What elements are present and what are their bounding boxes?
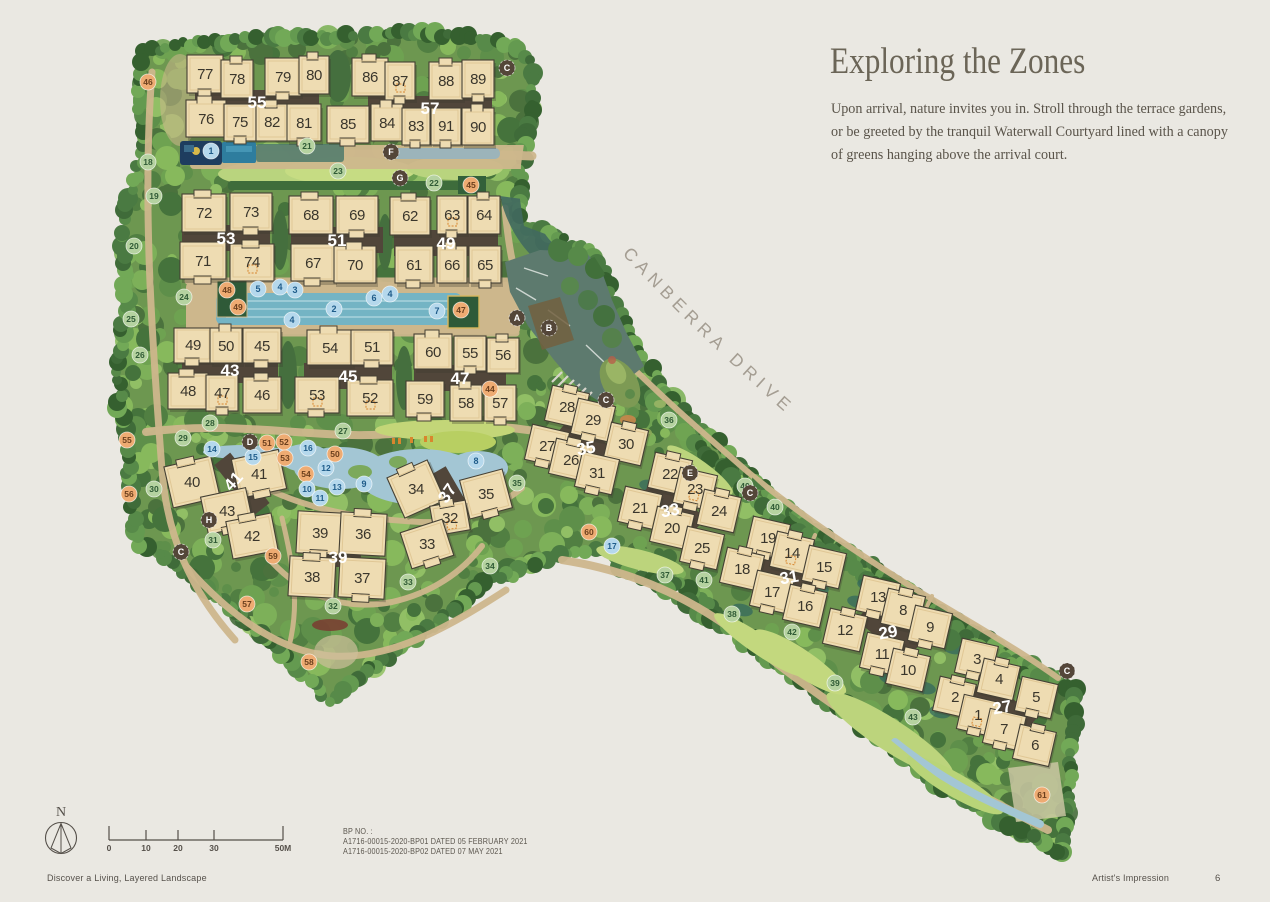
svg-text:90: 90 [470,119,486,136]
svg-text:65: 65 [477,257,493,274]
svg-text:C: C [504,63,511,73]
svg-text:73: 73 [243,204,259,221]
svg-text:74: 74 [244,254,260,271]
svg-text:7: 7 [434,306,439,316]
svg-text:51: 51 [328,231,347,250]
svg-text:50: 50 [330,449,340,459]
svg-text:34: 34 [408,481,424,498]
svg-text:41: 41 [699,575,709,585]
svg-text:23: 23 [333,166,343,176]
svg-text:47: 47 [456,305,466,315]
svg-text:42: 42 [244,528,260,545]
svg-text:24: 24 [179,292,189,302]
svg-text:62: 62 [402,208,418,225]
svg-text:37: 37 [354,570,370,587]
svg-text:33: 33 [403,577,413,587]
svg-text:78: 78 [229,71,245,88]
svg-text:88: 88 [438,73,454,90]
svg-text:51: 51 [262,438,272,448]
svg-text:G: G [396,173,403,183]
svg-text:49: 49 [185,337,201,354]
svg-text:58: 58 [304,657,314,667]
svg-text:8: 8 [899,602,907,619]
svg-text:30: 30 [618,436,634,453]
svg-text:68: 68 [303,207,319,224]
svg-text:19: 19 [760,530,776,547]
svg-text:26: 26 [135,350,145,360]
svg-text:H: H [206,515,213,525]
svg-text:51: 51 [364,339,380,356]
svg-text:76: 76 [198,111,214,128]
svg-text:67: 67 [305,255,321,272]
svg-text:16: 16 [797,598,813,615]
svg-text:11: 11 [316,493,325,503]
svg-text:22: 22 [429,178,439,188]
svg-text:89: 89 [470,71,486,88]
svg-text:61: 61 [406,257,422,274]
svg-text:75: 75 [232,114,248,131]
svg-text:49: 49 [437,234,456,253]
svg-text:83: 83 [408,118,424,135]
svg-text:48: 48 [222,285,232,295]
svg-text:81: 81 [296,115,312,132]
svg-text:33: 33 [659,499,681,521]
svg-text:B: B [546,323,553,333]
svg-text:16: 16 [303,443,313,453]
svg-text:28: 28 [205,418,215,428]
svg-text:35: 35 [575,437,597,459]
svg-text:7: 7 [1000,721,1008,738]
svg-text:45: 45 [339,367,358,386]
svg-text:59: 59 [268,551,278,561]
svg-text:71: 71 [195,253,211,270]
svg-text:31: 31 [208,535,218,545]
svg-text:25: 25 [126,314,136,324]
svg-text:38: 38 [727,609,737,619]
svg-text:39: 39 [329,548,348,567]
svg-text:57: 57 [421,99,440,118]
svg-text:F: F [388,147,394,157]
svg-text:46: 46 [254,387,270,404]
svg-text:54: 54 [322,340,338,357]
svg-text:4: 4 [289,315,294,325]
svg-text:37: 37 [660,570,670,580]
svg-text:50M: 50M [275,843,292,853]
svg-text:61: 61 [1037,790,1047,800]
svg-text:39: 39 [830,678,840,688]
svg-text:33: 33 [419,536,435,553]
svg-text:60: 60 [425,344,441,361]
svg-text:43: 43 [219,503,235,520]
svg-text:80: 80 [306,67,322,84]
svg-text:28: 28 [559,399,575,416]
svg-text:79: 79 [275,69,291,86]
svg-text:35: 35 [512,478,522,488]
svg-text:56: 56 [124,489,134,499]
svg-text:8: 8 [473,456,478,466]
svg-text:45: 45 [466,180,476,190]
svg-text:58: 58 [458,395,474,412]
svg-text:20: 20 [664,520,680,537]
svg-text:85: 85 [340,116,356,133]
svg-text:70: 70 [347,257,363,274]
svg-text:21: 21 [632,500,648,517]
svg-text:41: 41 [251,466,267,483]
svg-text:13: 13 [332,482,342,492]
svg-text:84: 84 [379,115,395,132]
svg-text:55: 55 [462,345,478,362]
svg-text:17: 17 [764,584,780,601]
svg-text:19: 19 [149,191,159,201]
svg-text:91: 91 [438,118,454,135]
svg-text:40: 40 [770,502,780,512]
svg-text:22: 22 [662,466,678,483]
svg-text:48: 48 [180,383,196,400]
svg-text:23: 23 [687,481,703,498]
svg-text:12: 12 [321,463,331,473]
svg-text:E: E [687,468,693,478]
svg-text:10: 10 [302,484,312,494]
svg-text:53: 53 [309,387,325,404]
svg-text:52: 52 [279,437,289,447]
svg-text:35: 35 [478,486,494,503]
svg-text:2: 2 [951,689,959,706]
svg-text:6: 6 [1031,737,1039,754]
svg-text:14: 14 [207,444,217,454]
svg-text:30: 30 [149,484,159,494]
svg-text:49: 49 [233,302,243,312]
svg-text:72: 72 [196,205,212,222]
svg-text:77: 77 [197,66,213,83]
svg-text:N: N [56,805,66,820]
svg-text:27: 27 [338,426,348,436]
svg-text:31: 31 [778,566,800,588]
svg-text:54: 54 [301,469,311,479]
svg-text:36: 36 [664,415,674,425]
svg-text:50: 50 [218,338,234,355]
svg-text:27: 27 [539,438,555,455]
svg-text:34: 34 [485,561,495,571]
svg-text:6: 6 [371,293,376,303]
svg-text:18: 18 [734,561,750,578]
svg-text:53: 53 [280,453,290,463]
svg-text:38: 38 [304,569,320,586]
svg-text:11: 11 [875,646,890,663]
svg-text:3: 3 [973,651,981,668]
svg-text:86: 86 [362,69,378,86]
svg-text:47: 47 [214,385,230,402]
svg-text:64: 64 [476,207,492,224]
svg-text:C: C [1064,666,1071,676]
svg-text:57: 57 [492,395,508,412]
svg-text:39: 39 [312,525,328,542]
svg-text:24: 24 [711,503,727,520]
svg-text:55: 55 [248,93,267,112]
svg-text:4: 4 [277,282,282,292]
svg-text:27: 27 [991,696,1013,718]
svg-text:52: 52 [362,390,378,407]
svg-text:29: 29 [178,433,188,443]
svg-text:17: 17 [607,541,617,551]
svg-text:13: 13 [870,589,886,606]
svg-text:29: 29 [585,412,601,429]
svg-text:14: 14 [784,545,800,562]
svg-text:A: A [514,313,521,323]
svg-text:21: 21 [302,141,312,151]
svg-text:31: 31 [589,465,605,482]
svg-text:12: 12 [837,622,853,639]
svg-text:82: 82 [264,114,280,131]
svg-text:45: 45 [254,338,270,355]
svg-text:43: 43 [221,361,240,380]
svg-text:20: 20 [173,843,183,853]
svg-text:1: 1 [208,146,213,156]
svg-text:15: 15 [816,559,832,576]
svg-text:1: 1 [974,707,982,724]
svg-text:66: 66 [444,257,460,274]
svg-text:18: 18 [143,157,153,167]
svg-text:44: 44 [485,384,495,394]
svg-text:43: 43 [908,712,918,722]
svg-text:4: 4 [387,289,392,299]
svg-text:C: C [178,547,185,557]
svg-text:57: 57 [242,599,252,609]
svg-text:32: 32 [328,601,338,611]
svg-text:9: 9 [926,619,934,636]
svg-text:0: 0 [107,843,112,853]
svg-text:69: 69 [349,207,365,224]
svg-text:46: 46 [143,77,153,87]
svg-text:42: 42 [787,627,797,637]
svg-text:55: 55 [122,435,132,445]
svg-text:4: 4 [995,671,1003,688]
svg-text:29: 29 [877,621,899,643]
svg-text:53: 53 [217,229,236,248]
svg-text:60: 60 [584,527,594,537]
svg-text:9: 9 [361,479,366,489]
svg-text:87: 87 [392,73,408,90]
svg-text:56: 56 [495,347,511,364]
svg-text:25: 25 [694,540,710,557]
svg-text:5: 5 [1032,689,1040,706]
svg-text:3: 3 [292,285,297,295]
svg-text:47: 47 [451,369,470,388]
svg-text:D: D [247,437,254,447]
svg-text:5: 5 [255,284,260,294]
svg-text:36: 36 [355,526,371,543]
svg-text:40: 40 [184,474,200,491]
svg-text:59: 59 [417,391,433,408]
svg-text:10: 10 [141,843,151,853]
svg-text:20: 20 [129,241,139,251]
svg-text:C: C [747,488,754,498]
svg-text:2: 2 [331,304,336,314]
svg-text:30: 30 [209,843,219,853]
svg-text:15: 15 [248,452,258,462]
svg-text:C: C [603,395,610,405]
svg-text:10: 10 [900,662,916,679]
svg-text:63: 63 [444,207,460,224]
